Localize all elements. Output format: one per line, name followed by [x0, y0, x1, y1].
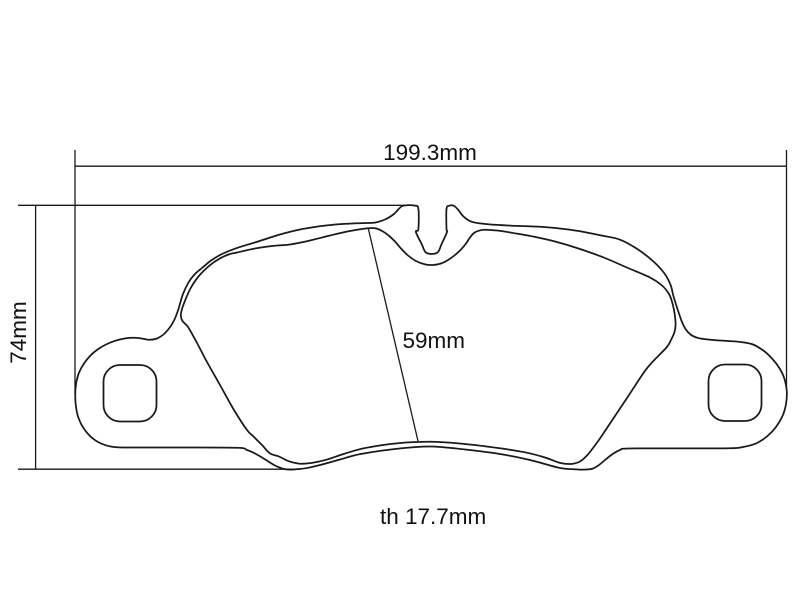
- svg-text:74mm: 74mm: [6, 301, 31, 364]
- svg-text:199.3mm: 199.3mm: [383, 140, 477, 165]
- svg-text:th 17.7mm: th 17.7mm: [380, 504, 486, 529]
- svg-text:59mm: 59mm: [403, 328, 466, 353]
